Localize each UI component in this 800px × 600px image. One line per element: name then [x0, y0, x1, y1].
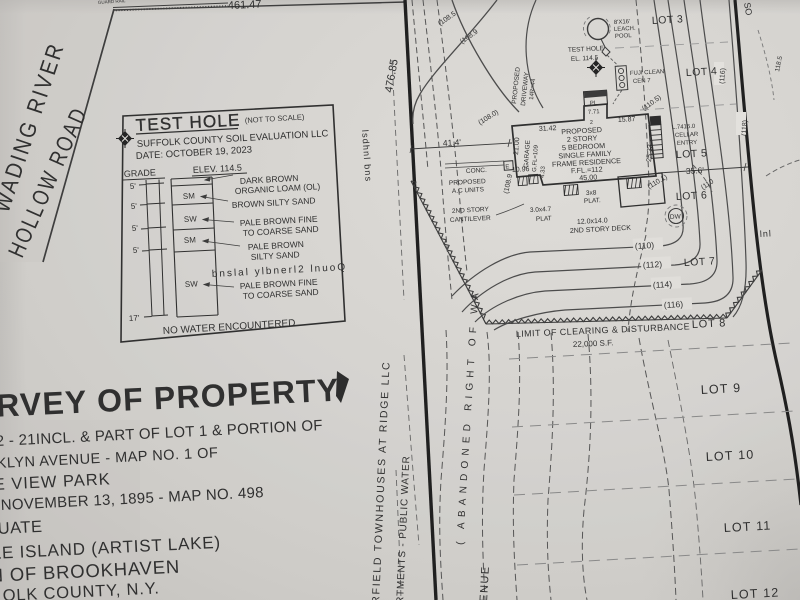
svg-text:8'X16': 8'X16' — [614, 19, 631, 26]
svg-text:LOT 4: LOT 4 — [686, 65, 718, 79]
svg-text:SM: SM — [184, 235, 197, 245]
svg-text:(118): (118) — [741, 120, 749, 136]
svg-text:22,000 S.F.: 22,000 S.F. — [573, 338, 614, 349]
svg-text:LOT 11: LOT 11 — [723, 519, 771, 535]
svg-text:3x8: 3x8 — [586, 189, 597, 197]
svg-text:SW: SW — [184, 214, 198, 224]
svg-text:CEN 7: CEN 7 — [633, 78, 652, 85]
svg-text:LOT 5: LOT 5 — [676, 147, 708, 161]
svg-text:PL: PL — [590, 100, 598, 107]
svg-text:5': 5' — [131, 202, 138, 211]
svg-text:EL. 114.5: EL. 114.5 — [571, 55, 599, 63]
svg-text:LOT 3: LOT 3 — [652, 13, 684, 27]
svg-text:ENUE: ENUE — [478, 565, 492, 600]
svg-text:5': 5' — [130, 182, 137, 191]
svg-text:15.87: 15.87 — [618, 116, 636, 124]
svg-text:35.6': 35.6' — [686, 165, 705, 176]
svg-text:7.71: 7.71 — [588, 109, 601, 116]
svg-text:CONC.: CONC. — [466, 167, 487, 175]
svg-text:21.00: 21.00 — [513, 137, 521, 155]
svg-text:GRADE: GRADE — [124, 167, 156, 179]
svg-text:31.42: 31.42 — [539, 125, 557, 133]
svg-text:DW: DW — [670, 213, 682, 221]
svg-text:ENTRY: ENTRY — [677, 140, 698, 147]
svg-text:LOT 10: LOT 10 — [705, 447, 754, 464]
svg-text:L.7416.0: L.7416.0 — [672, 124, 696, 131]
svg-text:(114): (114) — [653, 279, 673, 290]
svg-text:E: E — [505, 164, 509, 170]
svg-text:LOT 7: LOT 7 — [684, 255, 716, 269]
svg-text:UATE: UATE — [0, 518, 43, 538]
svg-text:5': 5' — [132, 224, 139, 233]
svg-text:LOT 12: LOT 12 — [730, 585, 779, 600]
svg-text:PLAT: PLAT — [536, 215, 552, 223]
svg-text:5': 5' — [133, 246, 140, 255]
svg-text:PLAT.: PLAT. — [584, 197, 601, 205]
svg-text:17': 17' — [129, 313, 140, 323]
svg-text:45.00: 45.00 — [579, 172, 597, 182]
svg-text:CELLAR: CELLAR — [675, 132, 699, 139]
svg-text:(110): (110) — [635, 240, 655, 251]
svg-text:LEACH.: LEACH. — [614, 26, 636, 33]
svg-text:41.4': 41.4' — [443, 137, 462, 148]
svg-text:10.96: 10.96 — [512, 166, 530, 174]
svg-text:(116): (116) — [719, 68, 727, 84]
svg-text:4.33: 4.33 — [540, 165, 547, 178]
svg-text:LOT 8: LOT 8 — [692, 317, 727, 331]
svg-text:SM: SM — [183, 191, 196, 201]
svg-text:(112): (112) — [643, 259, 663, 270]
svg-text:LOT 6: LOT 6 — [676, 189, 708, 203]
svg-text:lnl: lnl — [760, 228, 773, 239]
svg-text:461.47: 461.47 — [228, 0, 262, 12]
svg-text:(116): (116) — [664, 299, 684, 310]
svg-text:POOL: POOL — [615, 33, 633, 40]
svg-text:3.0x4.7: 3.0x4.7 — [530, 206, 552, 214]
svg-text:SW: SW — [185, 279, 199, 289]
svg-text:LOT 9: LOT 9 — [700, 381, 741, 397]
